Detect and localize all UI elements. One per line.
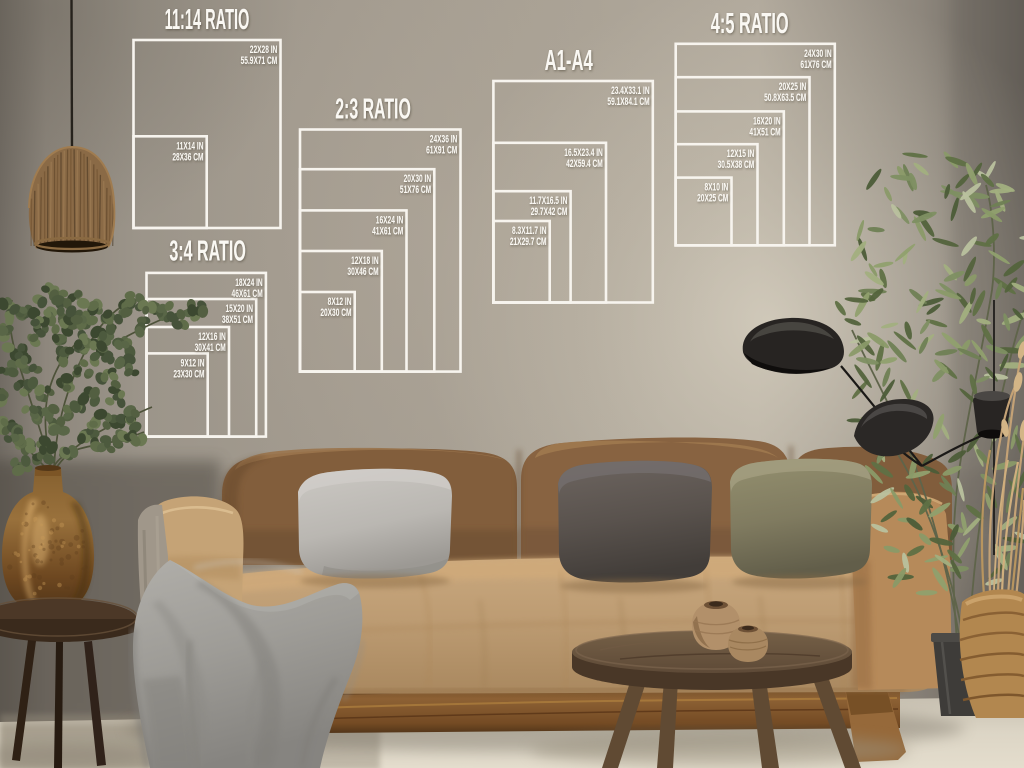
svg-text:50.8X63.5 CM: 50.8X63.5 CM [764, 91, 806, 103]
svg-text:20X30 CM: 20X30 CM [320, 306, 351, 318]
svg-text:20X25 CM: 20X25 CM [697, 192, 728, 204]
svg-text:4:5 RATIO: 4:5 RATIO [711, 7, 789, 39]
svg-text:23X30 CM: 23X30 CM [173, 368, 204, 380]
svg-text:30X41 CM: 30X41 CM [195, 341, 226, 353]
svg-text:29.7X42 CM: 29.7X42 CM [531, 205, 568, 217]
svg-text:61X91 CM: 61X91 CM [426, 144, 457, 156]
svg-text:3:4 RATIO: 3:4 RATIO [169, 235, 245, 267]
svg-text:41X61 CM: 41X61 CM [372, 225, 403, 237]
svg-text:51X76 CM: 51X76 CM [400, 183, 431, 195]
svg-text:55.9X71 CM: 55.9X71 CM [241, 54, 278, 66]
svg-text:A1-A4: A1-A4 [545, 45, 594, 77]
svg-text:11:14 RATIO: 11:14 RATIO [165, 2, 250, 35]
svg-text:46X61 CM: 46X61 CM [232, 287, 263, 299]
svg-text:30X46 CM: 30X46 CM [347, 265, 378, 277]
svg-text:61X76 CM: 61X76 CM [800, 58, 831, 70]
svg-text:2:3 RATIO: 2:3 RATIO [335, 92, 411, 124]
svg-text:42X59.4 CM: 42X59.4 CM [566, 157, 603, 169]
svg-text:38X51 CM: 38X51 CM [222, 313, 253, 325]
svg-text:28X36 CM: 28X36 CM [172, 151, 203, 163]
svg-text:59.1X84.1 CM: 59.1X84.1 CM [607, 95, 649, 107]
svg-text:30.5X38 CM: 30.5X38 CM [718, 158, 755, 170]
svg-text:21X29.7 CM: 21X29.7 CM [510, 235, 547, 247]
svg-text:41X51 CM: 41X51 CM [749, 126, 780, 138]
